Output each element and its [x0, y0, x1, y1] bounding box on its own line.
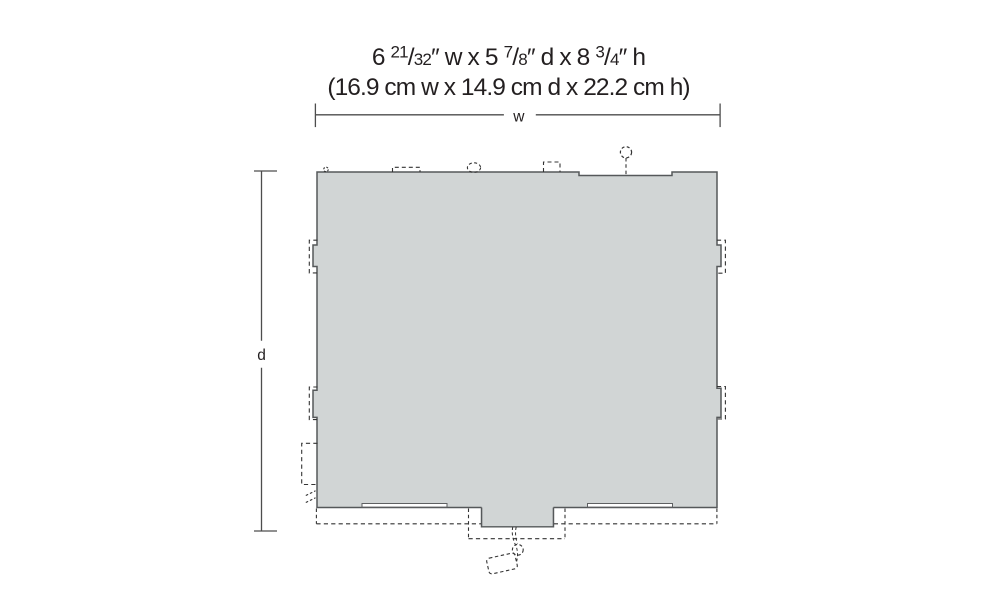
svg-text:(16.9 cm w x 14.9 cm d x 22.2: (16.9 cm w x 14.9 cm d x 22.2 cm h): [327, 74, 689, 101]
svg-text:d: d: [257, 347, 266, 364]
svg-text:w: w: [512, 109, 525, 126]
